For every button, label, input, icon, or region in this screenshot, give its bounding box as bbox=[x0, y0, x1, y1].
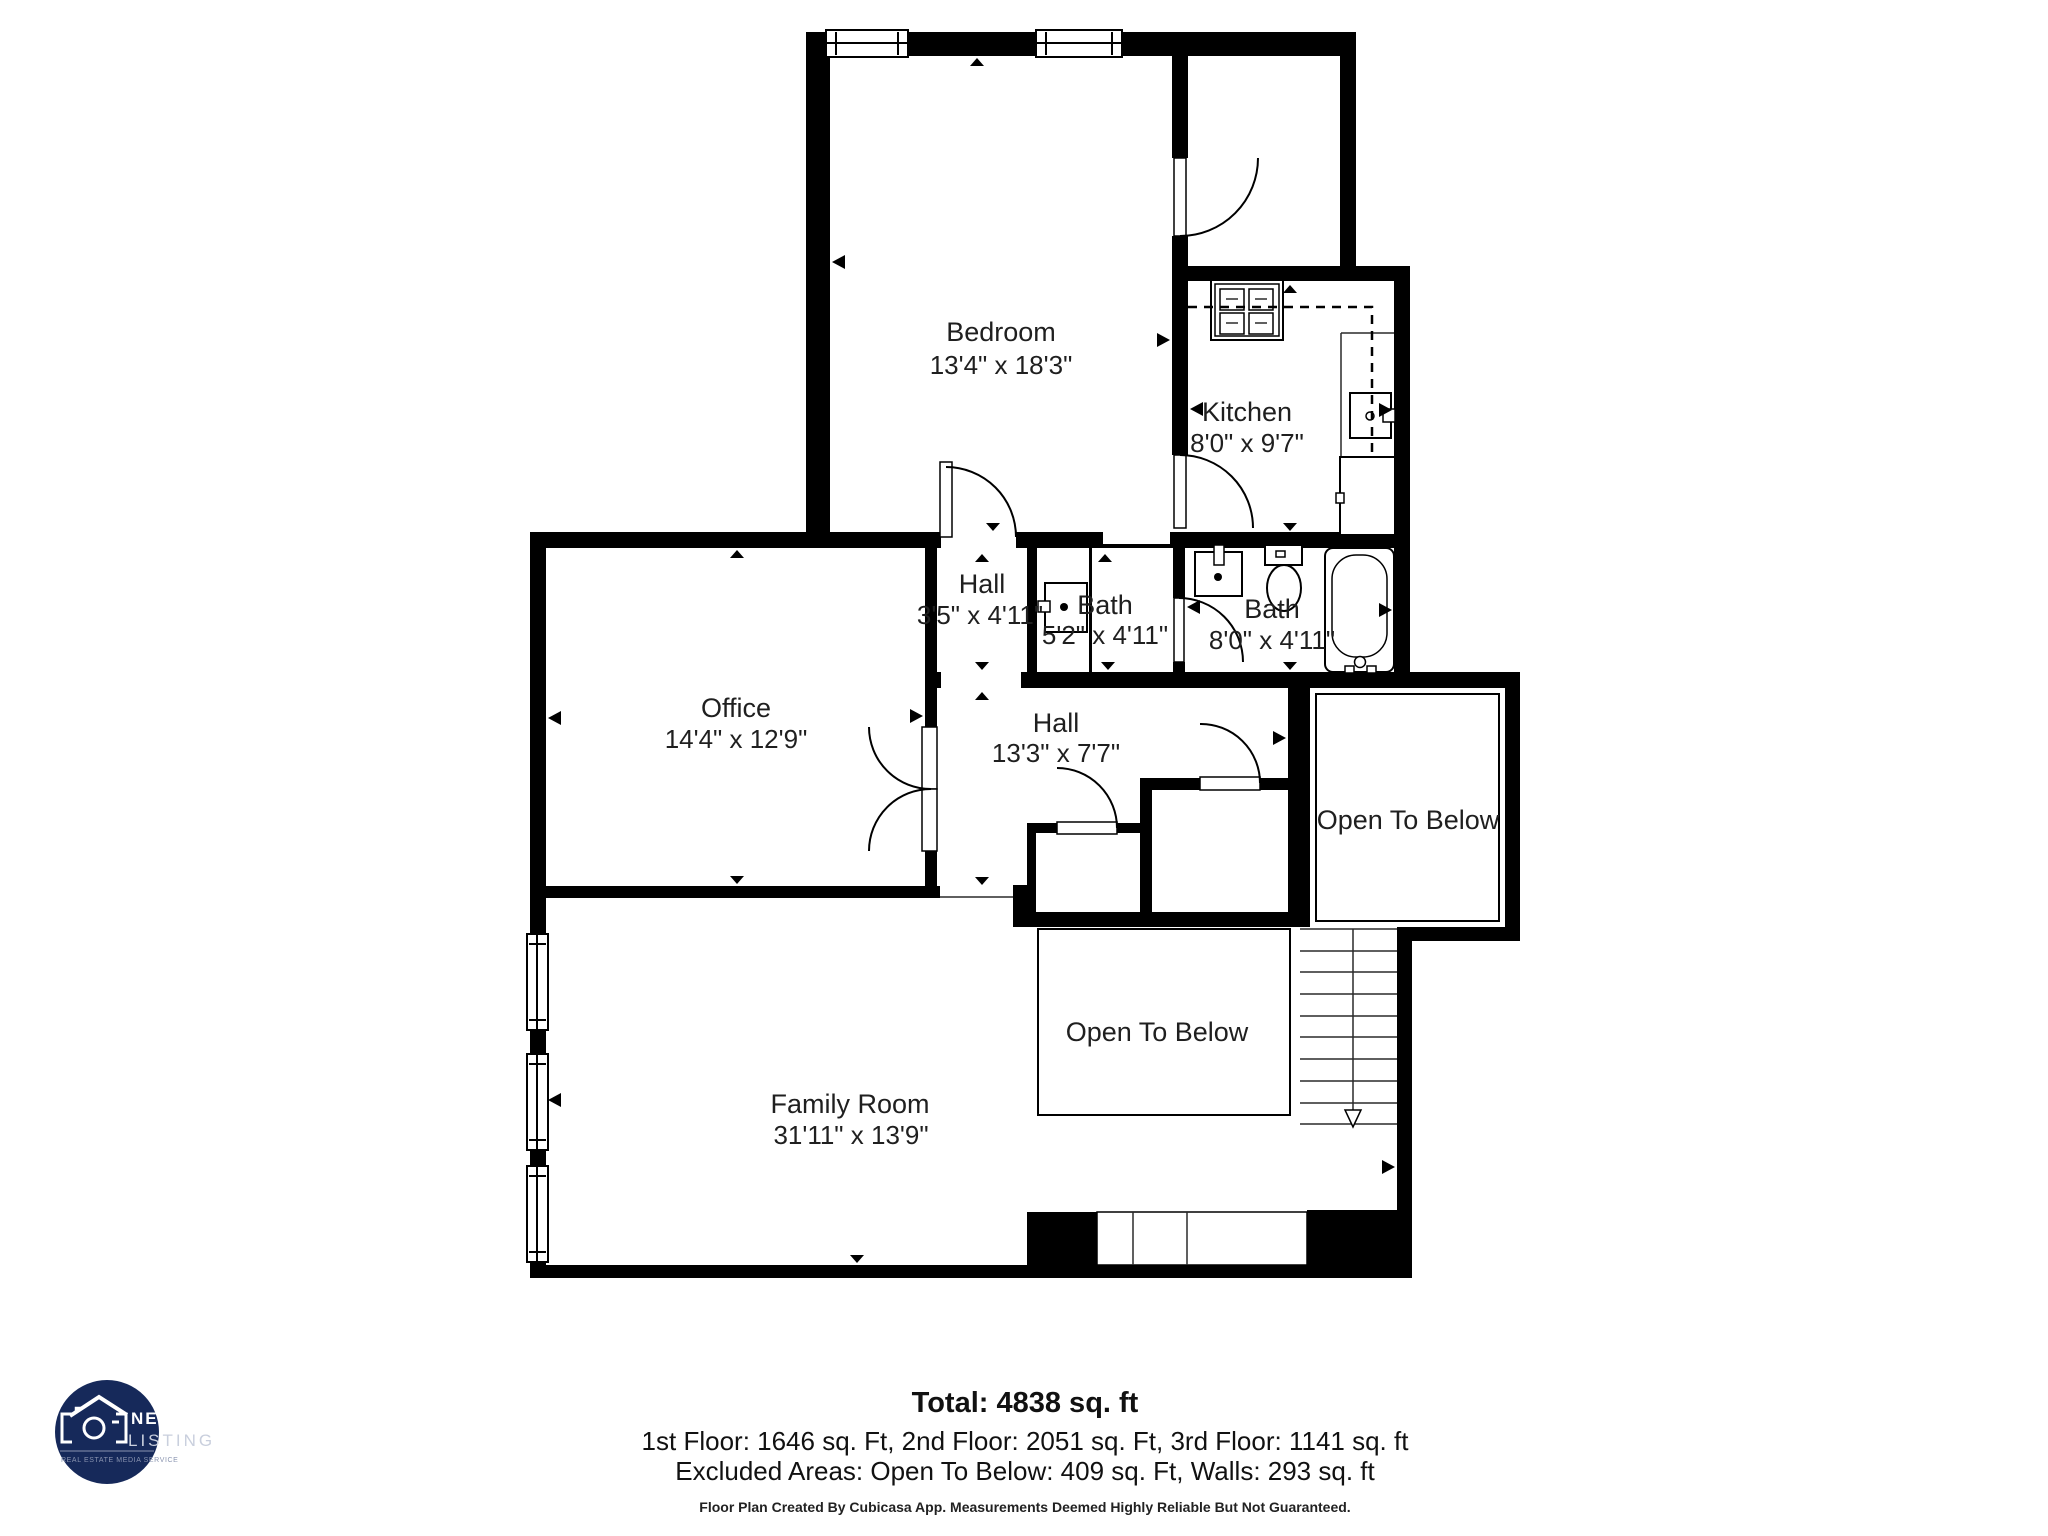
office-label: Office bbox=[701, 693, 771, 723]
open-below-upper-label: Open To Below bbox=[1317, 805, 1500, 835]
family-room-label: Family Room bbox=[770, 1089, 929, 1119]
bath-large-label: Bath bbox=[1244, 594, 1300, 624]
office-dims: 14'4" x 12'9" bbox=[665, 724, 808, 754]
hall-closet-b-door bbox=[1200, 724, 1260, 790]
bedroom-label: Bedroom bbox=[946, 317, 1056, 347]
total-area-text: Total: 4838 sq. ft bbox=[912, 1387, 1139, 1419]
bedroom-dims: 13'4" x 18'3" bbox=[930, 350, 1073, 380]
logo-brand-bottom: LISTING bbox=[128, 1431, 215, 1450]
floor-plan-page: Bedroom 13'4" x 18'3" Kitchen 8'0" x 9'7… bbox=[0, 0, 2048, 1536]
disclaimer-text: Floor Plan Created By Cubicasa App. Meas… bbox=[699, 1499, 1350, 1515]
closet-door bbox=[1174, 158, 1258, 236]
floor-plan-canvas: Bedroom 13'4" x 18'3" Kitchen 8'0" x 9'7… bbox=[0, 0, 2048, 1536]
fridge-handle bbox=[1336, 493, 1344, 503]
logo-tagline: REAL ESTATE MEDIA SERVICE bbox=[61, 1457, 178, 1464]
kitchen-label: Kitchen bbox=[1202, 397, 1292, 427]
kitchen-dims: 8'0" x 9'7" bbox=[1190, 428, 1304, 458]
summary-block: Total: 4838 sq. ft 1st Floor: 1646 sq. F… bbox=[642, 1387, 1410, 1515]
excluded-areas-text: Excluded Areas: Open To Below: 409 sq. F… bbox=[675, 1456, 1375, 1486]
next-listing-logo: NEXT LISTING REAL ESTATE MEDIA SERVICE bbox=[55, 1380, 215, 1484]
room-labels: Bedroom 13'4" x 18'3" Kitchen 8'0" x 9'7… bbox=[665, 317, 1500, 1150]
hall-upper-label: Hall bbox=[959, 569, 1006, 599]
bedroom-window-right bbox=[1036, 30, 1122, 57]
bath-small-label: Bath bbox=[1077, 590, 1133, 620]
family-room-dims: 31'11" x 13'9" bbox=[773, 1120, 928, 1150]
kitchen-door bbox=[1174, 455, 1253, 528]
hall-upper-dims: 3'5" x 4'11" bbox=[917, 600, 1043, 630]
hall-lower-label: Hall bbox=[1033, 708, 1080, 738]
family-window-3 bbox=[527, 1166, 548, 1262]
bath-small-dims: 5'2" x 4'11" bbox=[1042, 620, 1168, 650]
staircase bbox=[1300, 929, 1397, 1127]
bath-large-dims: 8'0" x 4'11" bbox=[1209, 625, 1335, 655]
fridge-icon bbox=[1340, 457, 1395, 535]
family-window-2 bbox=[527, 1054, 548, 1150]
stove-icon bbox=[1211, 280, 1283, 340]
big-bath-sink-icon bbox=[1195, 545, 1242, 596]
family-window-1 bbox=[527, 934, 548, 1030]
bedroom-window-left bbox=[826, 30, 908, 57]
floor-areas-text: 1st Floor: 1646 sq. Ft, 2nd Floor: 2051 … bbox=[642, 1426, 1410, 1456]
dimension-markers bbox=[548, 58, 1395, 1263]
logo-brand-top: NEXT bbox=[131, 1409, 184, 1428]
office-double-door bbox=[869, 727, 937, 851]
hall-lower-dims: 13'3" x 7'7" bbox=[992, 738, 1120, 768]
bedroom-door bbox=[940, 462, 1016, 537]
open-below-lower-label: Open To Below bbox=[1066, 1017, 1249, 1047]
hall-closet-a-door bbox=[1057, 768, 1117, 834]
built-in-cabinet bbox=[1097, 1212, 1307, 1265]
